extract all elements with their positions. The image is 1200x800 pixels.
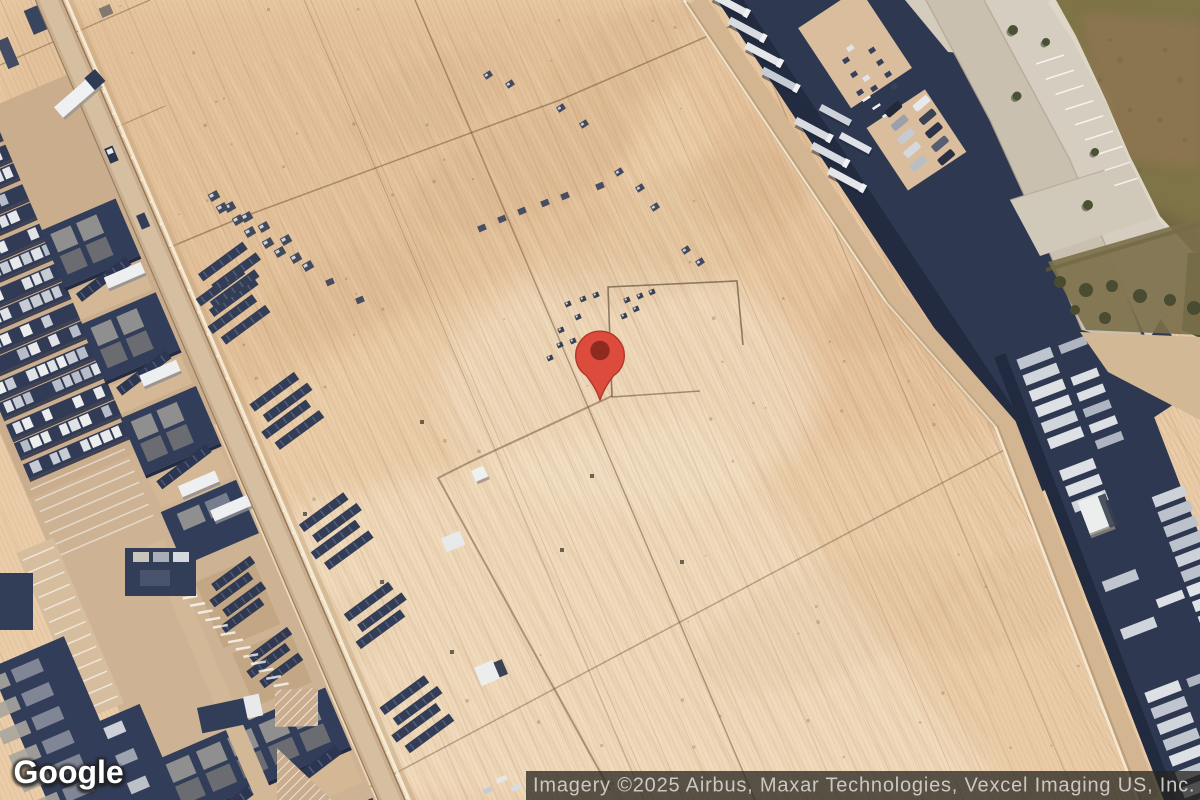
svg-text:Google: Google <box>14 754 124 790</box>
svg-text:Imagery ©2025 Airbus, Maxar Te: Imagery ©2025 Airbus, Maxar Technologies… <box>533 775 1195 797</box>
